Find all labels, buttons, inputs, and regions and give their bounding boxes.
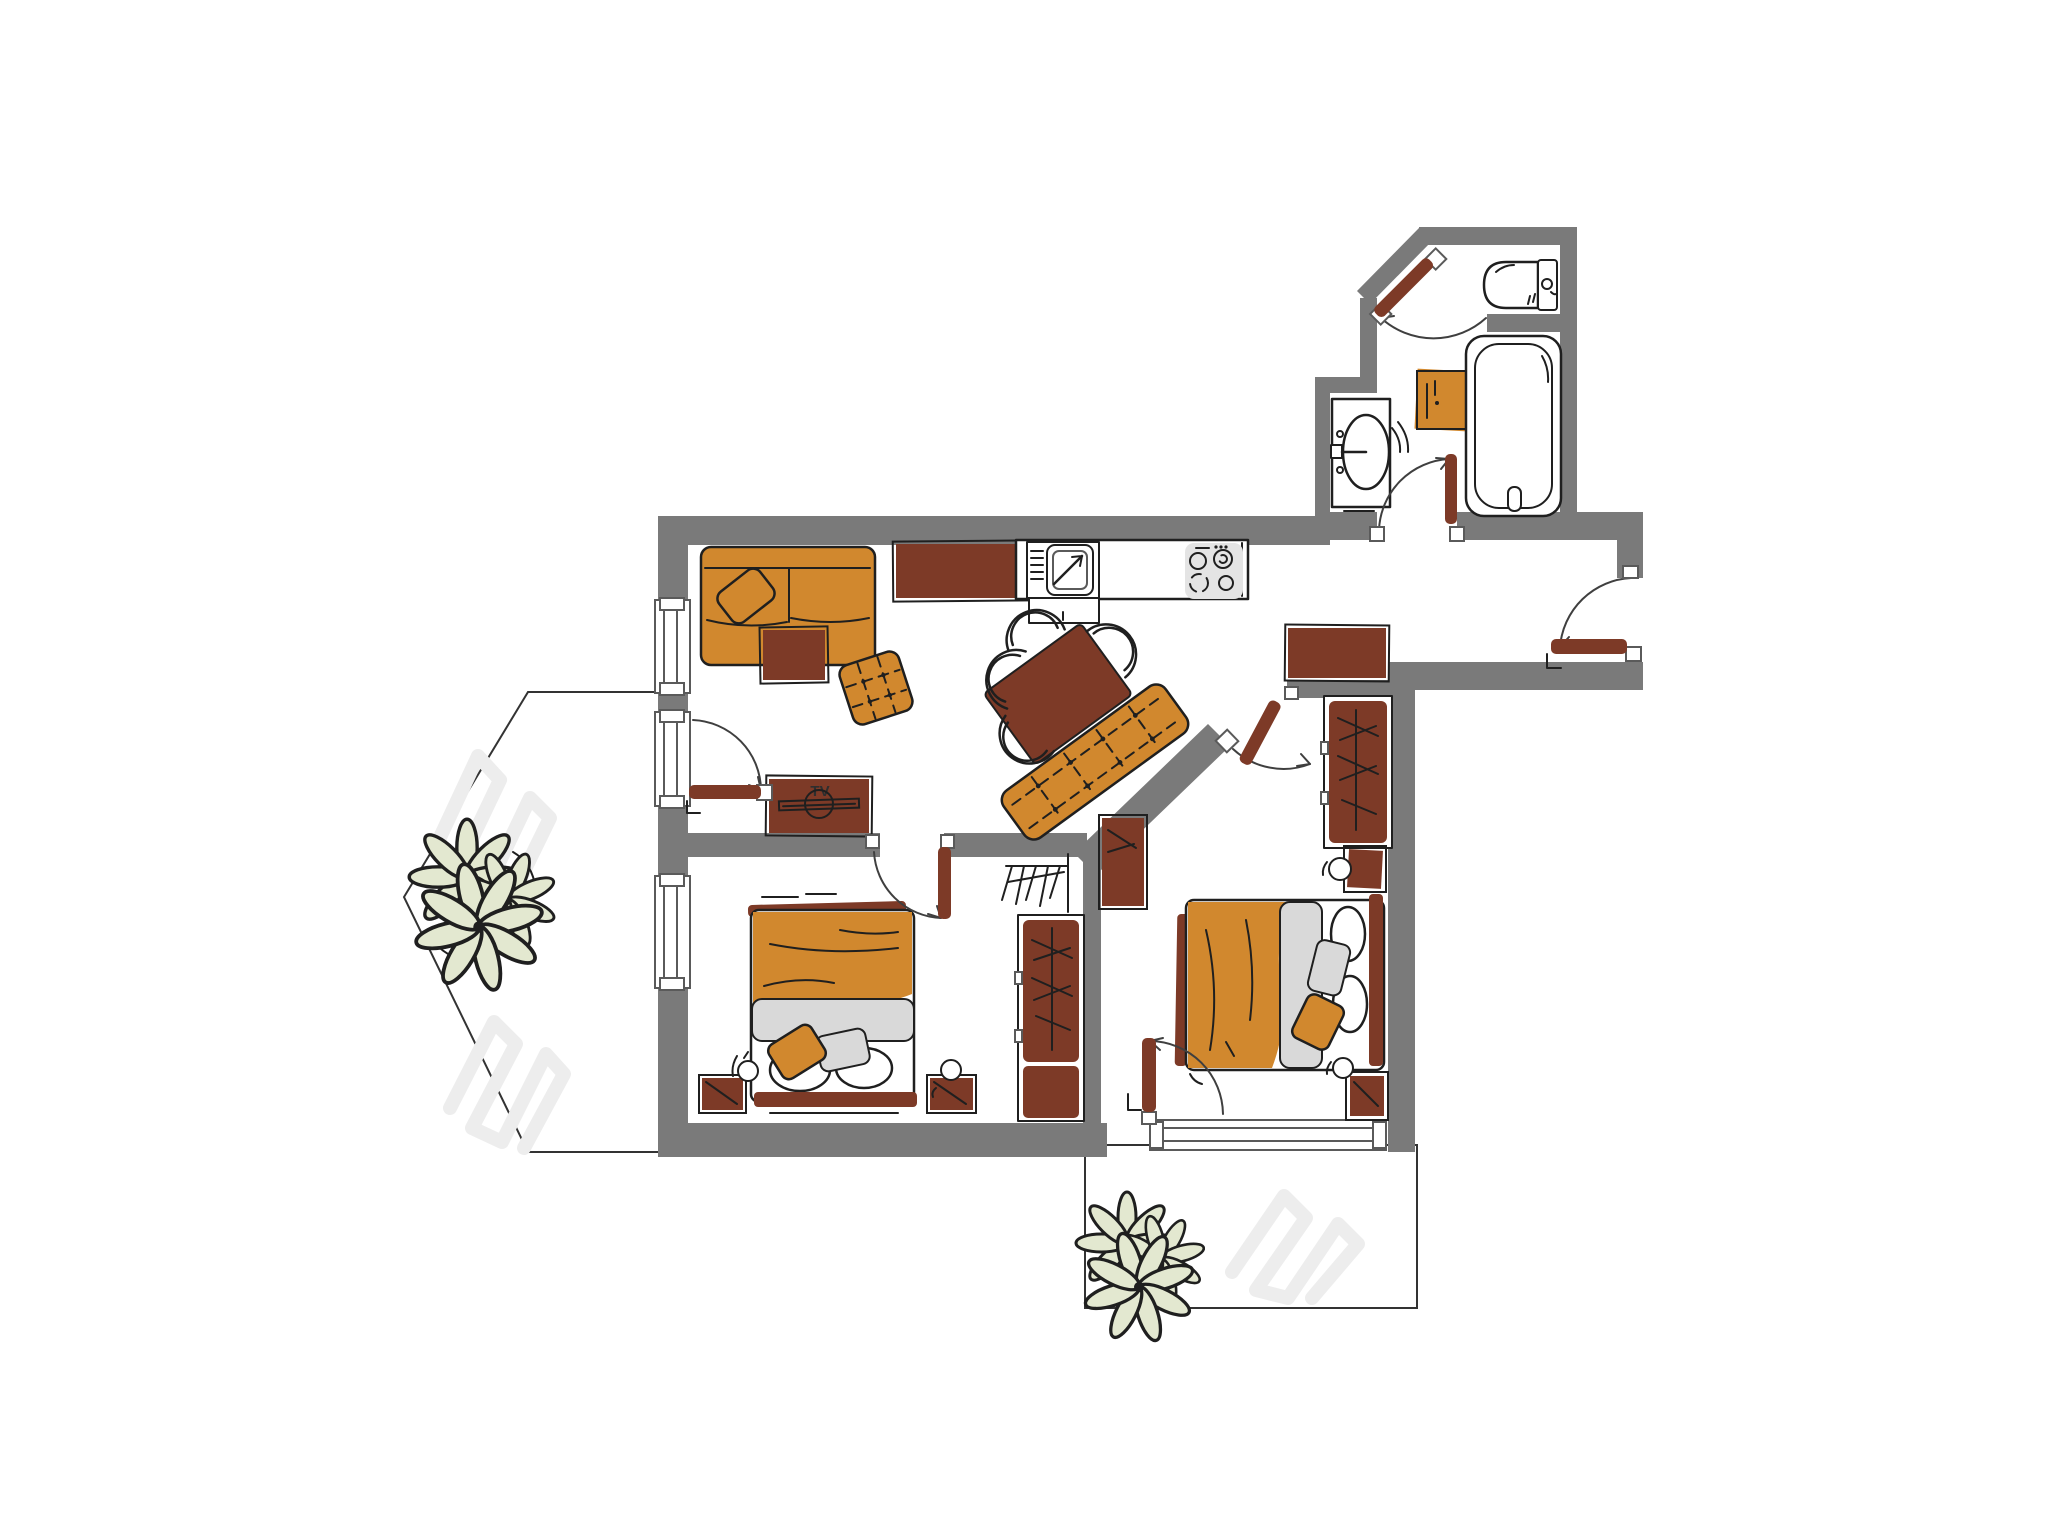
door-leaf: [1142, 1038, 1156, 1112]
window-bedroom2-balcony: [1150, 1120, 1386, 1150]
bathtub-drain: [1508, 487, 1521, 511]
bed-bedroom1: [733, 894, 918, 1113]
door-leaf: [938, 847, 951, 919]
side-cabinet: [1099, 815, 1147, 909]
stove: [1185, 543, 1243, 599]
wardrobe-bedroom2: [1321, 696, 1392, 848]
wall-wc-top: [1419, 227, 1577, 245]
table-lamp: [1329, 858, 1351, 880]
bathtub: [1466, 336, 1561, 516]
wall-hall-bottom: [1388, 662, 1643, 690]
coffee-table: [760, 626, 829, 683]
door-leaf: [689, 785, 761, 799]
toilet: [1484, 260, 1557, 310]
page-background: [0, 0, 2048, 1536]
window-balcony-door-glass: [655, 710, 690, 808]
tv-stand: TV: [766, 775, 873, 836]
wall-bottom-left: [658, 1123, 1107, 1157]
door-leaf: [1551, 639, 1627, 654]
wall-wc-bottom: [1487, 314, 1560, 332]
window-bedroom1: [655, 874, 690, 990]
door-leaf: [1445, 454, 1457, 524]
headboard: [754, 1092, 917, 1107]
wall-bath-right: [1560, 227, 1577, 513]
wall-divider-right: [944, 833, 1087, 857]
blanket: [1188, 902, 1290, 1068]
table-lamp: [1333, 1058, 1353, 1078]
floor-plan-svg: TV: [0, 0, 2048, 1536]
wall-sink-stub: [1315, 377, 1377, 393]
washing-machine: [1414, 369, 1469, 432]
headboard: [1369, 894, 1383, 1066]
hall-console: [1285, 624, 1390, 681]
floor-plan-canvas: TV: [0, 0, 2048, 1536]
table-lamp: [738, 1061, 758, 1081]
table-lamp: [941, 1060, 961, 1080]
wardrobe-bedroom1: [1015, 915, 1084, 1121]
window-living: [655, 598, 690, 695]
bed-bedroom2: [1175, 894, 1384, 1084]
sideboard: [893, 540, 1030, 601]
blanket: [753, 912, 912, 1011]
wall-sink-left: [1315, 393, 1330, 516]
